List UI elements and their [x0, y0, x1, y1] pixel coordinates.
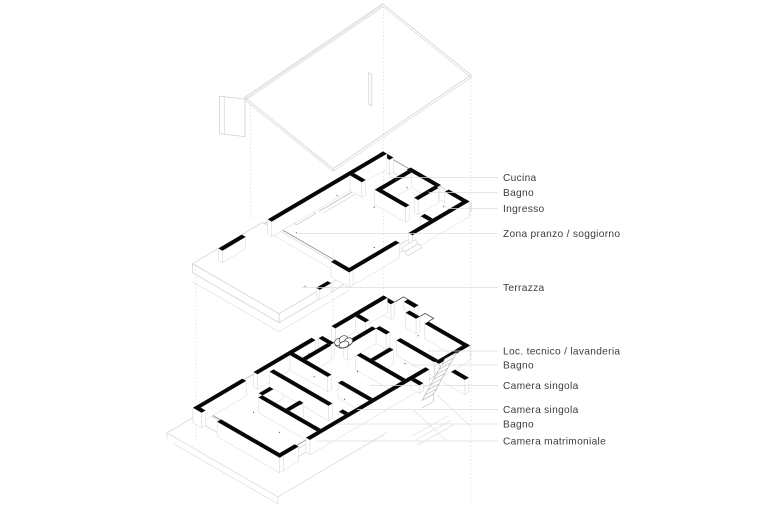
- svg-text:Zona pranzo / soggiorno: Zona pranzo / soggiorno: [503, 229, 620, 240]
- svg-text:Camera singola: Camera singola: [503, 405, 579, 416]
- svg-text:Ingresso: Ingresso: [503, 204, 545, 215]
- svg-text:Camera matrimoniale: Camera matrimoniale: [503, 437, 606, 448]
- svg-text:Loc. tecnico / lavanderia: Loc. tecnico / lavanderia: [503, 347, 620, 358]
- svg-text:Cucina: Cucina: [503, 173, 537, 184]
- svg-text:Terrazza: Terrazza: [503, 283, 544, 294]
- svg-text:Camera singola: Camera singola: [503, 381, 579, 392]
- svg-text:Bagno: Bagno: [503, 420, 534, 431]
- svg-text:Bagno: Bagno: [503, 188, 534, 199]
- svg-text:Bagno: Bagno: [503, 361, 534, 372]
